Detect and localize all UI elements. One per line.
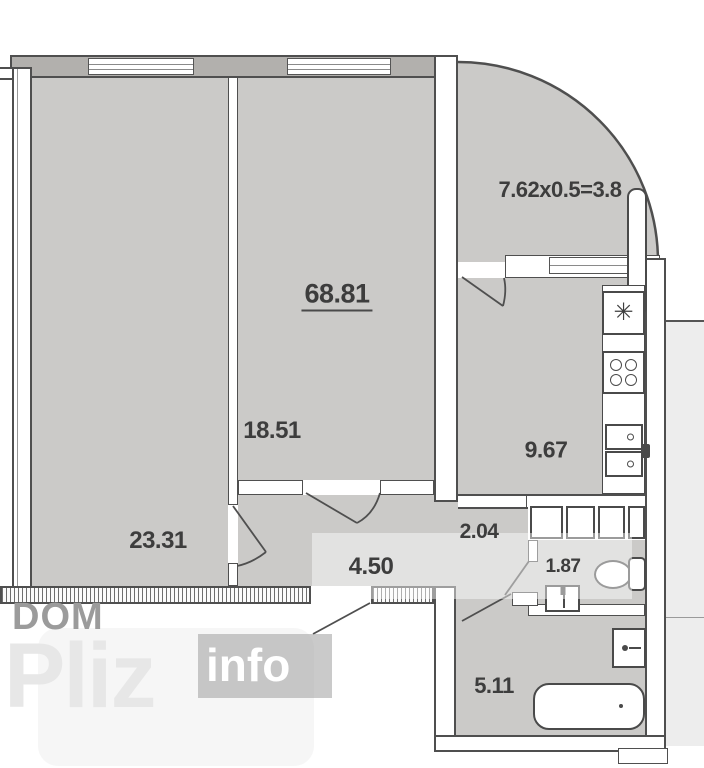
wall-bottom-right-step — [618, 748, 668, 764]
area-label-living: 18.51 — [243, 417, 301, 445]
bathtub-drain-icon — [619, 704, 623, 708]
wall-left-exterior — [12, 67, 32, 592]
window-living — [287, 58, 391, 75]
window-frame-line — [89, 69, 193, 70]
area-label-bathroom: 5.11 — [474, 673, 514, 699]
sink-drain-icon — [627, 434, 634, 441]
kitchen-sink-lower — [605, 451, 643, 477]
burner-icon — [625, 374, 637, 386]
door-arc-balcony — [503, 278, 505, 306]
area-label-wc: 1.87 — [546, 556, 581, 578]
fridge: ✳ — [602, 291, 645, 335]
area-label-corridor: 2.04 — [460, 520, 499, 544]
washbasin-tap-icon — [629, 647, 641, 649]
door-leaf-living — [306, 493, 357, 523]
area-label-balcony: 7.62x0.5=3.8 — [498, 177, 621, 203]
door-leaf-bedroom — [233, 506, 266, 552]
door-leaf-balcony — [462, 277, 503, 306]
wall-living-bottom-left — [238, 480, 303, 495]
wall-living-bottom-right — [380, 480, 434, 495]
area-label-bedroom: 23.31 — [129, 527, 187, 555]
door-leaf-entrance — [313, 603, 370, 634]
watermark-info: info — [206, 634, 290, 696]
door-arc-bedroom — [237, 552, 266, 566]
window-bedroom — [88, 58, 194, 75]
watermark-pliz: Pliz — [4, 630, 154, 722]
wall-central-lower — [434, 586, 456, 752]
wall-partition-bedroom-stub — [228, 563, 238, 586]
total-area-value: 68.81 — [301, 279, 372, 312]
window-frame-line — [288, 64, 390, 65]
washbasin-drain-icon — [622, 645, 628, 651]
wall-top-exterior — [10, 55, 458, 78]
kitchen-tap-icon — [641, 444, 650, 458]
watermark-info-box: info — [198, 634, 332, 698]
wall-inner-line — [17, 69, 18, 590]
washbasin — [612, 628, 646, 668]
bathtub — [533, 683, 645, 730]
area-label-hallway: 4.50 — [349, 553, 394, 581]
wall-central-upper — [434, 55, 458, 502]
wall-partition-bedroom-living — [228, 77, 238, 505]
door-arc-living — [357, 493, 380, 523]
stove-burners — [608, 357, 639, 388]
kitchen-sink-upper — [605, 424, 643, 450]
burner-icon — [610, 374, 622, 386]
total-area-label: 68.81 — [301, 279, 372, 310]
window-frame-line — [89, 64, 193, 65]
burner-icon — [625, 359, 637, 371]
sink-drain-icon — [627, 461, 634, 468]
burner-icon — [610, 359, 622, 371]
wall-divider-line — [526, 496, 527, 507]
wall-right-exterior — [645, 258, 666, 752]
snowflake-icon: ✳ — [613, 301, 633, 325]
wall-top-left-stub — [0, 67, 12, 80]
floor-plan-canvas: ✳ 68.81 7.62x0.5=3.8 18.51 23.31 9.67 4.… — [0, 0, 704, 768]
stove — [602, 351, 645, 394]
window-frame-line — [288, 69, 390, 70]
area-label-kitchen: 9.67 — [525, 437, 568, 464]
